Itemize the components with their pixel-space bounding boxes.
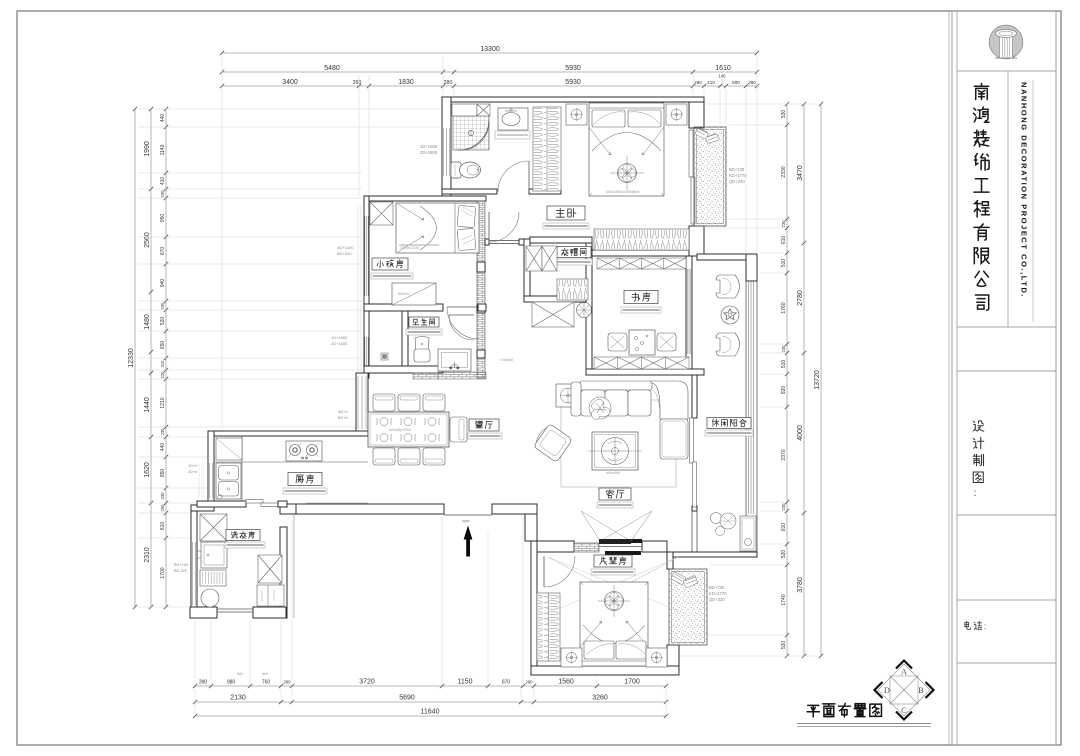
svg-text:1990: 1990: [144, 141, 151, 157]
svg-text:C: C: [901, 705, 907, 715]
svg-text:####: ####: [462, 520, 470, 524]
svg-text:13300: 13300: [480, 46, 500, 53]
svg-text:2D+1500: 2D+1500: [331, 341, 348, 346]
svg-text:3260: 3260: [592, 695, 608, 702]
svg-text:B: B: [918, 685, 924, 695]
svg-text:13720: 13720: [814, 370, 821, 390]
svg-text:1700: 1700: [160, 567, 166, 578]
svg-text:410: 410: [707, 80, 715, 85]
svg-text:440: 440: [160, 114, 166, 123]
svg-text:950: 950: [160, 214, 166, 223]
svg-text:260: 260: [353, 80, 362, 86]
svg-text:520: 520: [781, 641, 787, 650]
svg-text:2D+1500: 2D+1500: [420, 150, 438, 155]
svg-text:410: 410: [160, 177, 166, 186]
svg-text:1440: 1440: [144, 397, 151, 413]
svg-text:520: 520: [160, 317, 166, 326]
svg-text:530: 530: [781, 110, 787, 119]
svg-text:520: 520: [781, 550, 787, 559]
svg-text:250: 250: [160, 504, 165, 512]
svg-text:2310: 2310: [144, 547, 151, 563]
svg-text:1560: 1560: [558, 679, 574, 686]
svg-text:4000: 4000: [797, 425, 804, 441]
svg-text:###: ###: [237, 672, 243, 676]
svg-text:940: 940: [160, 279, 166, 288]
svg-text:3780: 3780: [797, 577, 804, 593]
svg-text:3470: 3470: [797, 165, 804, 181]
svg-text:5930: 5930: [565, 65, 581, 72]
svg-text:BD+730: BD+730: [729, 167, 745, 172]
svg-text:12330: 12330: [128, 348, 135, 368]
svg-text:BD+520: BD+520: [337, 251, 352, 256]
svg-text:D: D: [884, 685, 890, 695]
svg-text:280: 280: [284, 680, 292, 685]
svg-text:230: 230: [781, 220, 786, 228]
svg-text:1D+#: 1D+#: [188, 464, 198, 468]
svg-text:BD+730: BD+730: [709, 585, 725, 590]
svg-text:980: 980: [227, 680, 236, 686]
svg-text:230: 230: [781, 345, 786, 353]
svg-text:QD+230: QD+230: [729, 179, 745, 184]
svg-text:510: 510: [781, 360, 787, 369]
svg-text:###: ###: [262, 672, 268, 676]
svg-text:2D+#: 2D+#: [188, 470, 198, 474]
svg-text:BD+#: BD+#: [338, 416, 348, 420]
svg-text:AD+#: AD+#: [338, 410, 348, 414]
svg-text:1480: 1480: [144, 314, 151, 330]
svg-text:230: 230: [781, 503, 786, 511]
svg-text:610: 610: [160, 522, 166, 531]
svg-text:230: 230: [160, 190, 165, 198]
svg-text:1620: 1620: [144, 462, 151, 478]
svg-text:1150: 1150: [457, 679, 472, 686]
svg-text:310: 310: [160, 360, 165, 368]
svg-text:####1800x2000@##: ####1800x2000@##: [606, 190, 639, 194]
svg-text:280: 280: [444, 80, 453, 86]
svg-text:2370: 2370: [781, 449, 787, 460]
svg-text:870: 870: [502, 680, 511, 686]
svg-text:500: 500: [732, 80, 740, 85]
svg-text:3720: 3720: [359, 679, 375, 686]
svg-text:670: 670: [160, 247, 166, 256]
svg-text:280: 280: [526, 680, 534, 685]
svg-text:QD+230: QD+230: [709, 597, 725, 602]
svg-text:5480: 5480: [324, 65, 340, 72]
svg-text:140: 140: [719, 74, 727, 79]
svg-text:1D+1000: 1D+1000: [420, 144, 438, 149]
svg-text:NANHONG DECORATION PROJECT CO.: NANHONG DECORATION PROJECT CO.,LTD.: [1020, 82, 1029, 298]
svg-text:2130: 2130: [230, 695, 246, 702]
svg-text:1740: 1740: [781, 594, 787, 605]
svg-text:230: 230: [160, 428, 165, 436]
svg-text:3400: 3400: [282, 79, 298, 86]
svg-text:390: 390: [199, 680, 208, 686]
svg-text:1700: 1700: [624, 679, 640, 686]
svg-text:5690: 5690: [399, 695, 415, 702]
svg-text:1500x2100: 1500x2100: [400, 246, 419, 250]
svg-text:440: 440: [160, 443, 166, 452]
svg-text:850: 850: [160, 469, 166, 478]
svg-text:2560: 2560: [144, 232, 151, 248]
svg-text:600x(6)x2000: 600x(6)x2000: [389, 428, 411, 432]
svg-text:1D+1000: 1D+1000: [331, 335, 348, 340]
svg-text:AD+1100: AD+1100: [337, 245, 354, 250]
svg-text:11640: 11640: [421, 709, 440, 716]
svg-text:810: 810: [781, 523, 787, 532]
svg-text:2780: 2780: [797, 290, 804, 306]
svg-text:280: 280: [748, 80, 756, 85]
svg-text:BD-325: BD-325: [174, 569, 187, 573]
svg-text:###x###: ###x###: [606, 471, 620, 475]
svg-text:1210: 1210: [160, 397, 166, 408]
svg-text:BD+150: BD+150: [174, 563, 188, 567]
svg-text:230: 230: [160, 302, 165, 310]
svg-text:5930: 5930: [565, 79, 581, 86]
svg-text:1760: 1760: [781, 302, 787, 313]
svg-text:KD+1770: KD+1770: [729, 173, 747, 178]
svg-text:1610: 1610: [715, 65, 731, 72]
svg-text:A: A: [901, 667, 908, 677]
svg-text:# #####: # #####: [500, 358, 513, 362]
svg-text:1140: 1140: [160, 144, 166, 155]
svg-text:280: 280: [694, 80, 702, 85]
svg-text:650: 650: [160, 341, 166, 350]
svg-text:220: 220: [160, 371, 165, 379]
svg-text::: :: [984, 622, 986, 631]
svg-text:760: 760: [262, 680, 271, 686]
svg-text:510: 510: [781, 259, 787, 268]
svg-text:610: 610: [781, 236, 787, 245]
svg-text::: :: [974, 488, 977, 499]
svg-text:1830: 1830: [398, 79, 414, 86]
svg-text:820: 820: [781, 386, 787, 395]
svg-text:330: 330: [160, 492, 165, 500]
svg-text:800x/3: 800x/3: [398, 292, 409, 296]
svg-text:2330: 2330: [781, 166, 787, 177]
svg-text:KD+1770: KD+1770: [709, 591, 727, 596]
